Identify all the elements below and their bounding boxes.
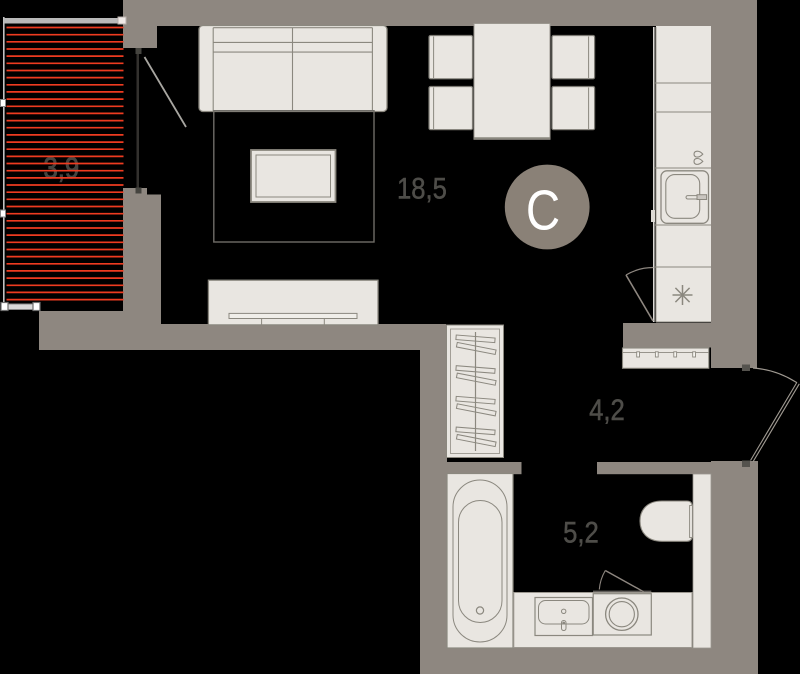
svg-text:C: C xyxy=(526,179,560,242)
svg-text:18,5: 18,5 xyxy=(397,172,447,205)
svg-text:4,2: 4,2 xyxy=(589,393,625,426)
svg-text:5,2: 5,2 xyxy=(563,516,599,549)
